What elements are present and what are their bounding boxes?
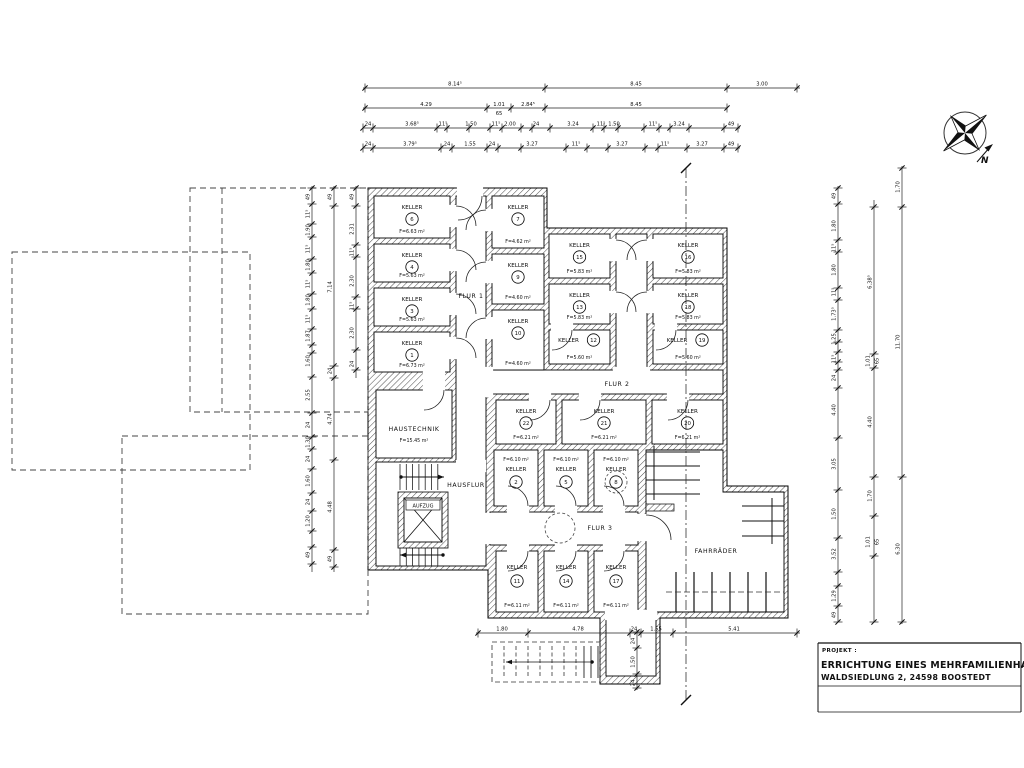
dimension-label: 1.80 bbox=[496, 627, 508, 633]
door-opening bbox=[485, 261, 493, 283]
room-area: F=6.11 m² bbox=[603, 603, 629, 609]
door-opening bbox=[603, 505, 625, 513]
dimension-label: 11⁵ bbox=[306, 245, 312, 254]
stair-arrow-head bbox=[506, 660, 512, 664]
dimension-label: 1.73⁵ bbox=[832, 307, 838, 321]
dimension-chain-vertical: 6.38⁵1.01654.401.701.0165 bbox=[866, 200, 881, 625]
label-fahrraeder: FAHRRÄDER bbox=[695, 546, 738, 555]
corridor-mid bbox=[616, 234, 647, 374]
dimension-label: 1.55 bbox=[650, 627, 662, 633]
room-area: F=4.60 m² bbox=[505, 361, 531, 367]
title-project-label: PROJEKT : bbox=[822, 648, 857, 654]
dimension-label: 1.20 bbox=[306, 515, 312, 527]
dimension-label: 3.27 bbox=[696, 142, 708, 148]
dimension-label: 4.74 bbox=[328, 413, 334, 425]
room-label: KELLER bbox=[678, 243, 699, 249]
room-area: F=6.63 m² bbox=[399, 229, 425, 235]
floor-plan-svg: KELLER6F=6.63 m²KELLER4F=5.63 m²KELLER3F… bbox=[0, 0, 1024, 768]
room-number: 4 bbox=[410, 265, 414, 271]
dimension-label: 24 bbox=[489, 142, 496, 148]
room-area: F=6.73 m² bbox=[399, 363, 425, 369]
room-number: 17 bbox=[613, 579, 620, 585]
title-line1: ERRICHTUNG EINES MEHRFAMILIENHAUSE bbox=[821, 660, 1024, 671]
dimension-label: 1.01 bbox=[866, 536, 872, 548]
room-label: KELLER bbox=[677, 409, 698, 415]
dimension-label: 49 bbox=[728, 142, 735, 148]
dimension-label: 4.48 bbox=[328, 501, 334, 513]
dimension-label: 1.50 bbox=[608, 122, 620, 128]
door-opening bbox=[529, 393, 551, 401]
door-opening bbox=[423, 371, 445, 391]
dimension-label: 49 bbox=[306, 552, 312, 559]
door-opening bbox=[646, 239, 654, 261]
dimension-label: 3.68⁵ bbox=[405, 122, 419, 128]
room-area: F=6.10 m² bbox=[503, 457, 529, 463]
room-number: 7 bbox=[516, 217, 519, 223]
dimension-label: 1.87 bbox=[306, 330, 312, 342]
room-area: F=6.21 m² bbox=[513, 435, 539, 441]
stair-arrow-dot bbox=[590, 660, 593, 663]
room-label: KELLER bbox=[569, 243, 590, 249]
dimension-label: 1.80 bbox=[306, 294, 312, 306]
dimension-label: 1.60 bbox=[306, 355, 312, 367]
dimension-label: 1.80 bbox=[306, 259, 312, 271]
dimension-label: 1.50 bbox=[465, 122, 477, 128]
room-label: KELLER bbox=[516, 409, 537, 415]
room-number: 8 bbox=[614, 480, 618, 486]
room-area: F=5.63 m² bbox=[399, 273, 425, 279]
label-haustechnik: HAUSTECHNIK bbox=[388, 426, 439, 433]
dimension-label: 5.41 bbox=[728, 627, 740, 633]
dimension-label: 1.25 bbox=[832, 333, 838, 345]
dimension-label: 1.80 bbox=[832, 220, 838, 232]
dimension-label: 11⁵ bbox=[306, 315, 312, 324]
dimension-label: 24 bbox=[365, 122, 372, 128]
door-opening bbox=[605, 610, 657, 620]
dimension-chain-horizontal: 243.79⁵241.55243.2711⁵3.2711⁵3.2749 bbox=[360, 142, 740, 153]
room-number: 9 bbox=[516, 275, 520, 281]
door-opening bbox=[609, 291, 617, 313]
room-area: F=4.62 m² bbox=[505, 239, 531, 245]
room-keller-6: KELLER6F=6.63 m² bbox=[374, 196, 450, 238]
dimension-label: 24 bbox=[631, 637, 637, 644]
dimension-label: 11⁵ bbox=[572, 142, 581, 148]
label-haustechnik-area: F=15.45 m² bbox=[400, 438, 429, 444]
room-number: 15 bbox=[576, 255, 583, 261]
room-keller-7: KELLER7F=4.62 m² bbox=[492, 196, 544, 248]
room-keller-20: KELLER20F=6.21 m² bbox=[652, 400, 723, 444]
stair-arrow-dot bbox=[441, 553, 444, 556]
room-keller-2: KELLER2F=6.10 m² bbox=[494, 450, 538, 506]
room-area: F=4.60 m² bbox=[505, 295, 531, 301]
door-opening bbox=[449, 293, 457, 315]
room-number: 11 bbox=[514, 579, 521, 585]
room-keller-22: KELLER22F=6.21 m² bbox=[496, 400, 556, 444]
dimension-label: 2.55 bbox=[306, 389, 312, 401]
dimension-label: 3.24 bbox=[673, 122, 685, 128]
room-keller-3: KELLER3F=5.63 m² bbox=[374, 288, 450, 326]
dimension-label: 24 bbox=[832, 374, 838, 381]
room-haustechnik bbox=[376, 390, 452, 458]
dimension-label: 2.30 bbox=[350, 275, 356, 287]
room-keller-15: KELLER15F=5.83 m² bbox=[549, 234, 610, 278]
door-opening bbox=[646, 291, 654, 313]
corridor-flur1 bbox=[456, 196, 486, 470]
dimension-label: 4.29 bbox=[420, 102, 432, 108]
stair-arrow-dot bbox=[399, 475, 402, 478]
room-label: KELLER bbox=[606, 467, 627, 473]
neighbour-outline bbox=[122, 436, 368, 614]
dimension-label: 6.30 bbox=[896, 543, 902, 555]
dimension-label: 1.30 bbox=[306, 436, 312, 448]
room-label: KELLER bbox=[508, 263, 529, 269]
dimension-label: 3.24 bbox=[567, 122, 579, 128]
dimension-chain-vertical: 4911⁵1.9011⁵1.8011⁵1.8011⁵1.871.602.5524… bbox=[306, 185, 317, 572]
dimension-label: 49 bbox=[832, 612, 838, 619]
dimension-label: 49 bbox=[328, 194, 334, 201]
dimension-label: 11⁵ bbox=[649, 122, 658, 128]
room-area: F=5.63 m² bbox=[399, 317, 425, 323]
dimension-label: 1.01 bbox=[493, 102, 505, 108]
door-opening bbox=[449, 249, 457, 271]
room-number: 20 bbox=[684, 421, 691, 427]
dimension-label: 49 bbox=[728, 122, 735, 128]
room-keller-16: KELLER16F=5.83 m² bbox=[653, 234, 723, 278]
door-opening bbox=[485, 209, 493, 231]
room-keller-19: KELLER19F=5.60 m² bbox=[653, 330, 723, 364]
label-flur3: FLUR 3 bbox=[587, 525, 612, 532]
dimension-chain-vertical: 1.7011.706.30 bbox=[896, 165, 907, 624]
dimension-label: 49 bbox=[832, 193, 838, 200]
door-opening bbox=[579, 393, 601, 401]
dimension-label: 1.90 bbox=[306, 224, 312, 236]
dimension-label: 3.27 bbox=[616, 142, 628, 148]
room-keller-18: KELLER18F=5.83 m² bbox=[653, 284, 723, 324]
dimension-label: 4.40 bbox=[832, 404, 838, 416]
dimension-label: 11.70 bbox=[896, 335, 902, 350]
room-number: 22 bbox=[523, 421, 530, 427]
dimension-label: 2.31 bbox=[350, 223, 356, 235]
room-keller-8: KELLER8F=6.10 m² bbox=[594, 450, 638, 506]
title-block: PROJEKT : ERRICHTUNG EINES MEHRFAMILIENH… bbox=[818, 643, 1024, 712]
dimension-label: 11⁵ bbox=[832, 288, 838, 297]
dimension-label: 24 bbox=[533, 122, 540, 128]
dimension-label: 3.05 bbox=[832, 458, 838, 470]
dimension-label: 24 bbox=[631, 679, 637, 686]
door-opening bbox=[609, 239, 617, 261]
dimension-label: 24 bbox=[444, 142, 451, 148]
dimension-label: 1.55 bbox=[464, 142, 476, 148]
dimension-label: 3.00 bbox=[756, 82, 768, 88]
room-area: F=6.10 m² bbox=[553, 457, 579, 463]
room-number: 14 bbox=[563, 579, 570, 585]
door-opening bbox=[636, 514, 648, 541]
dimension-label: 11⁵ bbox=[350, 302, 356, 311]
dimension-label: 8.14⁵ bbox=[448, 82, 462, 88]
room-label: KELLER bbox=[594, 409, 615, 415]
dimension-label: 7.14 bbox=[328, 281, 334, 293]
room-area: F=5.60 m² bbox=[675, 355, 701, 361]
room-area: F=6.10 m² bbox=[603, 457, 629, 463]
room-area: F=6.21 m² bbox=[675, 435, 701, 441]
label-hausflur: HAUSFLUR bbox=[447, 482, 485, 489]
dimension-label: 6.38⁵ bbox=[868, 275, 874, 289]
dimension-label: 1.80 bbox=[832, 264, 838, 276]
dimension-label: 11⁵ bbox=[350, 248, 356, 257]
dimension-label: 11⁵ bbox=[439, 122, 448, 128]
door-opening bbox=[551, 323, 573, 331]
door-opening bbox=[555, 505, 577, 513]
room-number: 3 bbox=[410, 309, 413, 315]
room-label: KELLER bbox=[667, 338, 688, 344]
door-opening bbox=[507, 505, 529, 513]
dimension-label: 11⁵ bbox=[306, 280, 312, 289]
room-keller-12: KELLER12F=5.60 m² bbox=[549, 330, 610, 364]
dimension-label: 3.52 bbox=[832, 548, 838, 560]
room-keller-21: KELLER21F=6.21 m² bbox=[562, 400, 646, 444]
dimension-label: 11⁵ bbox=[597, 122, 606, 128]
dimension-label: 65 bbox=[875, 358, 881, 365]
room-keller-11: KELLER11F=6.11 m² bbox=[496, 551, 538, 612]
dimension-label: 11⁵ bbox=[832, 244, 838, 253]
door-opening bbox=[449, 205, 457, 227]
dimension-label: 49 bbox=[328, 556, 334, 563]
room-label: KELLER bbox=[508, 205, 529, 211]
dimension-label: 24 bbox=[328, 367, 334, 374]
room-area: F=5.83 m² bbox=[567, 269, 593, 275]
room-number: 21 bbox=[601, 421, 608, 427]
room-area: F=5.83 m² bbox=[675, 315, 701, 321]
room-label: KELLER bbox=[402, 297, 423, 303]
dimension-label: 24 bbox=[306, 498, 312, 505]
dimension-chain-horizontal: 243.68⁵11⁵1.5011⁵2.00243.2411⁵1.5011⁵3.2… bbox=[360, 122, 740, 133]
dimension-label: 1.70 bbox=[896, 181, 902, 193]
room-number: 1 bbox=[410, 353, 413, 359]
dimension-chain-horizontal: 4.291.01652.84⁵8.45 bbox=[362, 102, 729, 117]
dimension-label: 3.79⁵ bbox=[403, 142, 417, 148]
room-keller-10: KELLER10F=4.60 m² bbox=[492, 310, 544, 370]
room-area: F=5.83 m² bbox=[567, 315, 593, 321]
dimension-label: 2.84⁵ bbox=[521, 102, 535, 108]
room-number: 6 bbox=[410, 217, 414, 223]
room-keller-1: KELLER1F=6.73 m² bbox=[374, 332, 450, 372]
door-opening bbox=[555, 544, 577, 552]
room-keller-13: KELLER13F=5.83 m² bbox=[549, 284, 610, 324]
dimension-label: 24 bbox=[306, 421, 312, 428]
room-number: 12 bbox=[590, 338, 597, 344]
dimension-label: 11⁵ bbox=[306, 210, 312, 219]
dimension-label: 49 bbox=[306, 194, 312, 201]
room-label: KELLER bbox=[402, 205, 423, 211]
corridor-flur3 bbox=[490, 512, 638, 545]
label-north: N bbox=[981, 156, 989, 166]
room-area: F=6.11 m² bbox=[553, 603, 579, 609]
door-opening bbox=[603, 544, 625, 552]
room-area: F=6.11 m² bbox=[504, 603, 530, 609]
dimension-label: 1.70 bbox=[868, 490, 874, 502]
dimension-label: 8.45 bbox=[630, 82, 642, 88]
dimension-label: 24 bbox=[365, 142, 372, 148]
door-opening bbox=[483, 367, 493, 397]
room-fahrraeder bbox=[646, 450, 784, 612]
room-number: 2 bbox=[514, 480, 517, 486]
room-area: F=5.60 m² bbox=[567, 355, 593, 361]
dimension-chain-vertical: 492.3111⁵2.3011⁵2.3024 bbox=[350, 185, 361, 378]
dimension-label: 4.40 bbox=[868, 416, 874, 428]
door-opening bbox=[485, 317, 493, 339]
dimension-label: 2.30 bbox=[350, 327, 356, 339]
dimension-label: 65 bbox=[875, 539, 881, 546]
dimension-label: 3.27 bbox=[526, 142, 538, 148]
door-opening bbox=[482, 513, 494, 544]
dimension-label: 1.60 bbox=[306, 475, 312, 487]
label-flur1: FLUR 1 bbox=[458, 293, 483, 300]
drawing-sheet: KELLER6F=6.63 m²KELLER4F=5.63 m²KELLER3F… bbox=[0, 0, 1024, 768]
dimension-label: 1.50 bbox=[631, 656, 637, 668]
north-arrow-head bbox=[985, 144, 994, 152]
room-keller-4: KELLER4F=5.63 m² bbox=[374, 244, 450, 282]
door-opening bbox=[613, 367, 650, 377]
dimension-label: 4.78 bbox=[572, 627, 584, 633]
room-label: KELLER bbox=[569, 293, 590, 299]
dimension-label: 2.00 bbox=[504, 122, 516, 128]
door-opening bbox=[457, 187, 483, 197]
dimension-label: 11⁵ bbox=[492, 122, 501, 128]
room-number: 10 bbox=[515, 331, 522, 337]
room-keller-9: KELLER9F=4.60 m² bbox=[492, 254, 544, 304]
room-keller-17: KELLER17F=6.11 m² bbox=[594, 551, 638, 612]
room-label: KELLER bbox=[507, 565, 528, 571]
dimension-chain-vertical: 497.14244.744.4849 bbox=[328, 185, 339, 572]
room-area: F=5.83 m² bbox=[675, 269, 701, 275]
exterior-stair bbox=[492, 642, 600, 682]
dimension-label: 65 bbox=[496, 111, 503, 117]
dimension-label: 1.50 bbox=[832, 508, 838, 520]
dimension-label: 1.01 bbox=[866, 355, 872, 367]
neighbour-outline bbox=[12, 252, 250, 470]
dimension-label: 49 bbox=[350, 194, 356, 201]
room-keller-14: KELLER14F=6.11 m² bbox=[544, 551, 588, 612]
dimension-chain-vertical: 491.8011⁵1.8011⁵1.73⁵1.2511⁵244.403.051.… bbox=[832, 185, 843, 624]
dimension-label: 8.45 bbox=[630, 102, 642, 108]
room-label: KELLER bbox=[556, 467, 577, 473]
label-aufzug: AUFZUG bbox=[413, 504, 434, 510]
dimension-label: 11⁵ bbox=[832, 355, 838, 364]
room-keller-5: KELLER5F=6.10 m² bbox=[544, 450, 588, 506]
dimension-label: 1.29 bbox=[832, 590, 838, 602]
door-opening bbox=[449, 337, 457, 359]
room-area: F=6.21 m² bbox=[591, 435, 617, 441]
door-opening bbox=[456, 460, 486, 472]
dimension-chain-horizontal: 8.14⁵8.453.00 bbox=[362, 82, 800, 93]
plan-geometry: KELLER6F=6.63 m²KELLER4F=5.63 m²KELLER3F… bbox=[12, 82, 993, 705]
room-number: 13 bbox=[576, 305, 583, 311]
room-label: KELLER bbox=[508, 319, 529, 325]
wall-stub bbox=[646, 504, 674, 511]
room-label: KELLER bbox=[402, 253, 423, 259]
room-number: 19 bbox=[699, 338, 706, 344]
label-flur2: FLUR 2 bbox=[604, 381, 629, 388]
neighbour-outline bbox=[190, 188, 368, 412]
compass-star-fill bbox=[944, 115, 987, 151]
room-label: KELLER bbox=[678, 293, 699, 299]
room-label: KELLER bbox=[402, 341, 423, 347]
room-label: KELLER bbox=[506, 467, 527, 473]
title-line2: WALDSIEDLUNG 2, 24598 BOOSTEDT bbox=[821, 673, 991, 682]
dimension-label: 24 bbox=[306, 455, 312, 462]
door-opening bbox=[655, 323, 677, 331]
door-opening bbox=[507, 544, 529, 552]
dimension-label: 24 bbox=[350, 360, 356, 367]
dimension-label: 11⁵ bbox=[661, 142, 670, 148]
compass-rose bbox=[944, 112, 993, 162]
room-number: 5 bbox=[564, 480, 567, 486]
